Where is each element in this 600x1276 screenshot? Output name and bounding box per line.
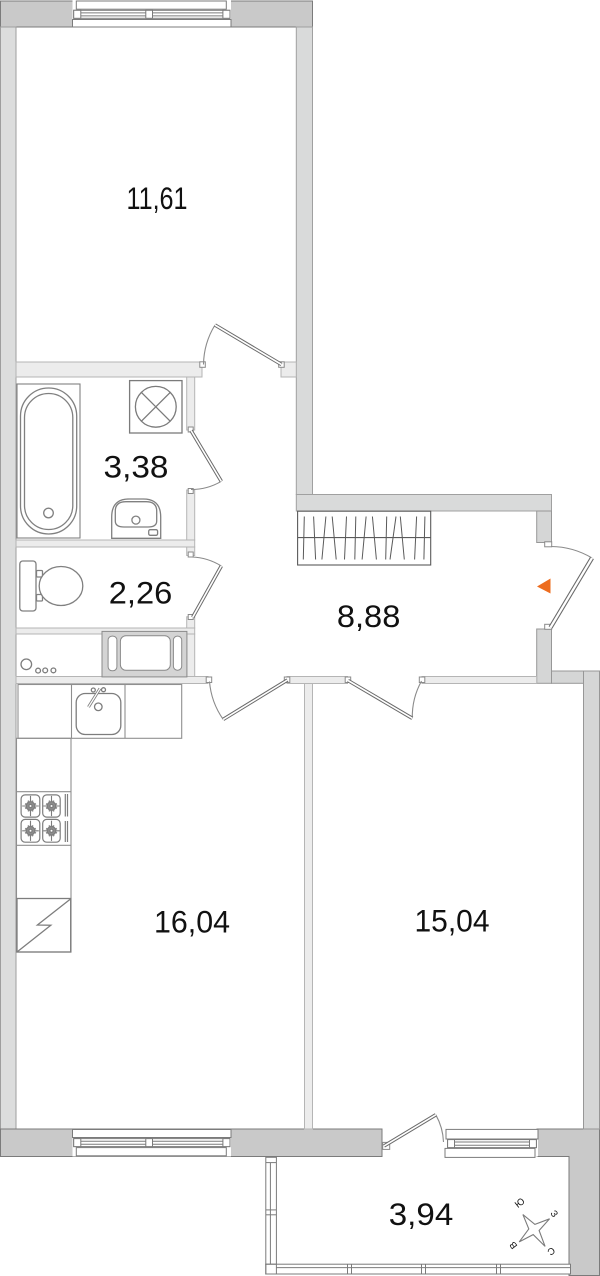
svg-text:3,38: 3,38 xyxy=(104,449,169,485)
svg-text:2,26: 2,26 xyxy=(109,575,173,611)
svg-text:11,61: 11,61 xyxy=(127,180,188,216)
svg-text:15,04: 15,04 xyxy=(415,903,490,939)
svg-text:3,94: 3,94 xyxy=(389,1196,454,1232)
svg-text:8,88: 8,88 xyxy=(337,598,401,634)
svg-text:16,04: 16,04 xyxy=(154,904,230,940)
